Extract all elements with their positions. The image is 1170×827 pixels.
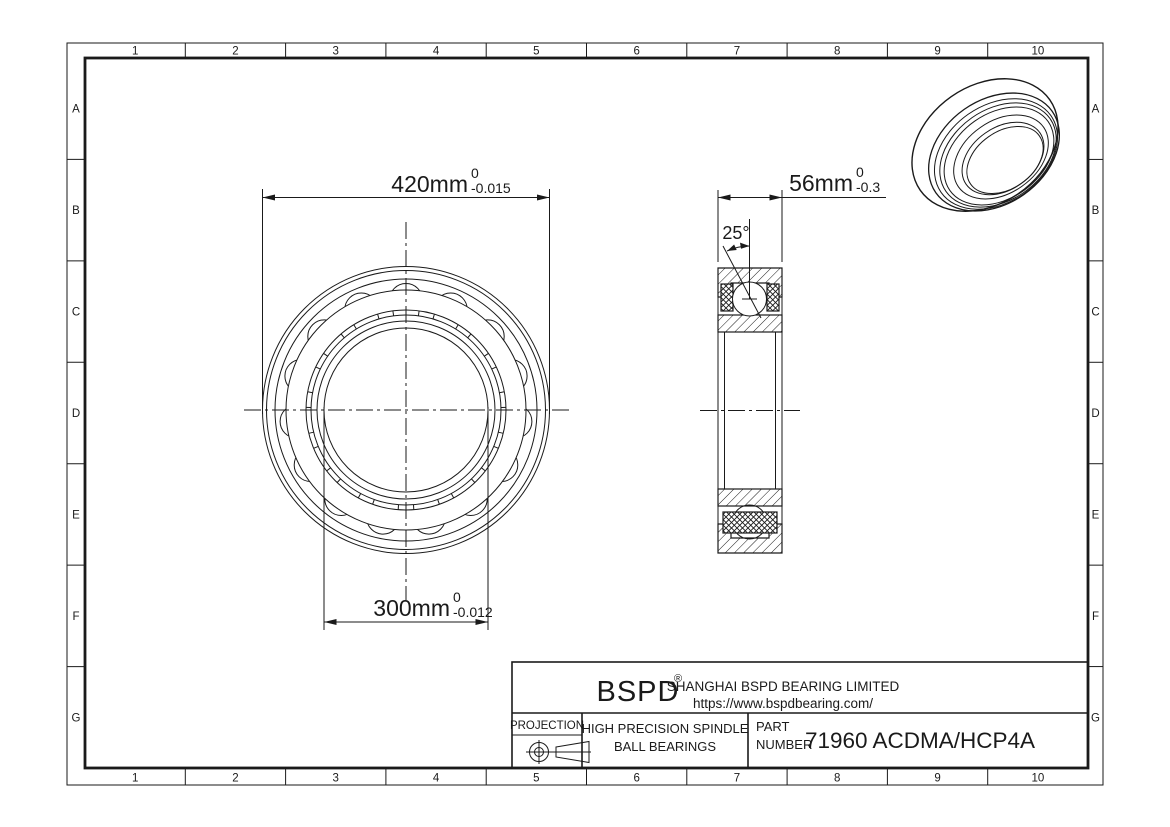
grid-col-label-top: 3 (333, 46, 339, 58)
grid-row-label-right: D (1091, 408, 1099, 420)
bore-dimension-text: 300mm (373, 595, 450, 621)
cage-pocket-tick (324, 353, 328, 356)
grid-top-labels: 12345678910 (132, 46, 1044, 58)
grid-col-label-top: 4 (433, 46, 440, 58)
grid-row-label-right: G (1091, 712, 1100, 724)
cage-pocket-tick (393, 311, 394, 316)
grid-row-label-right: B (1092, 205, 1100, 217)
grid-row-label-left: G (72, 712, 81, 724)
grid-row-label-right: C (1091, 307, 1099, 319)
grid-row-label-left: B (72, 205, 80, 217)
product-title-line-1: HIGH PRECISION SPINDLE (582, 721, 749, 736)
grid-col-label-top: 2 (232, 46, 238, 58)
grid-row-label-left: D (72, 408, 80, 420)
cage-pocket-tick (494, 446, 499, 448)
cage-pocket-tick (337, 479, 340, 483)
dimension-arrow (263, 195, 276, 201)
cage-section-right (767, 284, 779, 311)
angle-arrow (727, 245, 737, 252)
part-label-line-1: PART (756, 719, 790, 734)
cage-pocket-tick (499, 392, 504, 393)
cage-pocket-tick (358, 494, 360, 498)
drawing-sheet: 12345678910 12345678910 ABCDEFG ABCDEFG … (0, 0, 1170, 827)
grid-col-label-top: 8 (834, 46, 840, 58)
cage-pocket-tick (451, 494, 453, 498)
grid-col-label-bottom: 6 (633, 773, 639, 785)
width-dimension-text: 56mm (789, 170, 853, 196)
grid-col-label-top: 5 (533, 46, 539, 58)
grid-row-label-right: E (1092, 509, 1100, 521)
cage-pocket-tick (341, 334, 344, 338)
grid-col-label-bottom: 8 (834, 773, 840, 785)
grid-row-label-left: E (72, 509, 80, 521)
cage-pocket-tick (314, 446, 319, 448)
dimension-arrow (324, 619, 337, 625)
bearing-ball (308, 320, 341, 353)
grid-col-label-bottom: 7 (734, 773, 740, 785)
company-name: SHANGHAI BSPD BEARING LIMITED (667, 679, 900, 694)
width-tolerance-lower: -0.3 (856, 179, 880, 195)
bore-tolerance-lower: -0.012 (453, 604, 493, 620)
inner-ring-section-top (718, 315, 782, 332)
bearing-ball (471, 320, 504, 353)
part-label-line-2: NUMBER (756, 737, 812, 752)
cage-pocket-tick (378, 314, 379, 319)
grid-col-label-bottom: 4 (433, 773, 440, 785)
grid-col-label-top: 7 (734, 46, 740, 58)
grid-col-label-bottom: 2 (232, 773, 238, 785)
grid-col-label-top: 6 (633, 46, 639, 58)
projection-label: PROJECTION (510, 720, 584, 732)
cage-pocket-tick (484, 353, 488, 356)
angle-arrow (740, 243, 750, 249)
grid-row-label-right: A (1092, 104, 1100, 116)
grid-bottom-labels: 12345678910 (132, 773, 1044, 785)
grid-row-label-left: F (72, 611, 79, 623)
cage-section-bottom (723, 512, 777, 533)
bore-tolerance-upper: 0 (453, 589, 461, 605)
grid-col-label-bottom: 3 (333, 773, 339, 785)
front-view (244, 222, 570, 600)
dimension-bore-diameter: 300mm 0 -0.012 (324, 407, 493, 630)
od-tolerance-upper: 0 (471, 165, 479, 181)
grid-col-label-bottom: 9 (934, 773, 940, 785)
cage-pocket-tick (471, 479, 474, 483)
dimension-arrow (718, 195, 731, 201)
cage-pocket-tick (418, 311, 419, 316)
side-view: 25° (700, 219, 800, 553)
cage-pocket-tick (468, 334, 471, 338)
grid-right-labels: ABCDEFG (1091, 104, 1100, 725)
grid-col-label-bottom: 10 (1031, 773, 1044, 785)
drawing-canvas: 12345678910 12345678910 ABCDEFG ABCDEFG … (0, 0, 1170, 827)
isometric-view (886, 51, 1083, 238)
inner-ring-section-bottom (718, 489, 782, 506)
contact-angle-text: 25° (722, 223, 749, 243)
grid-col-label-top: 1 (132, 46, 138, 58)
grid-row-label-left: C (72, 307, 80, 319)
product-title-line-2: BALL BEARINGS (614, 739, 716, 754)
grid-col-label-bottom: 5 (533, 773, 539, 785)
cage-pocket-tick (308, 392, 313, 393)
grid-row-label-left: A (72, 104, 80, 116)
bearing-ball (285, 360, 318, 393)
iso-bore-edge (954, 113, 1056, 208)
od-tolerance-lower: -0.015 (471, 180, 511, 196)
part-number: 71960 ACDMA/HCP4A (805, 728, 1035, 753)
cage-section-left (721, 284, 733, 311)
grid-col-label-top: 9 (934, 46, 940, 58)
bearing-ball (494, 360, 527, 393)
dimension-arrow (537, 195, 550, 201)
width-tolerance-upper: 0 (856, 164, 864, 180)
title-block: BSPD ® SHANGHAI BSPD BEARING LIMITED htt… (510, 662, 1088, 768)
cage-pocket-tick (433, 314, 434, 319)
dimension-arrow (770, 195, 783, 201)
grid-col-label-bottom: 1 (132, 773, 138, 785)
od-dimension-text: 420mm (391, 171, 468, 197)
grid-col-label-top: 10 (1031, 46, 1044, 58)
company-website: https://www.bspdbearing.com/ (693, 696, 873, 711)
grid-left-labels: ABCDEFG (72, 104, 81, 725)
grid-row-label-right: F (1092, 611, 1099, 623)
